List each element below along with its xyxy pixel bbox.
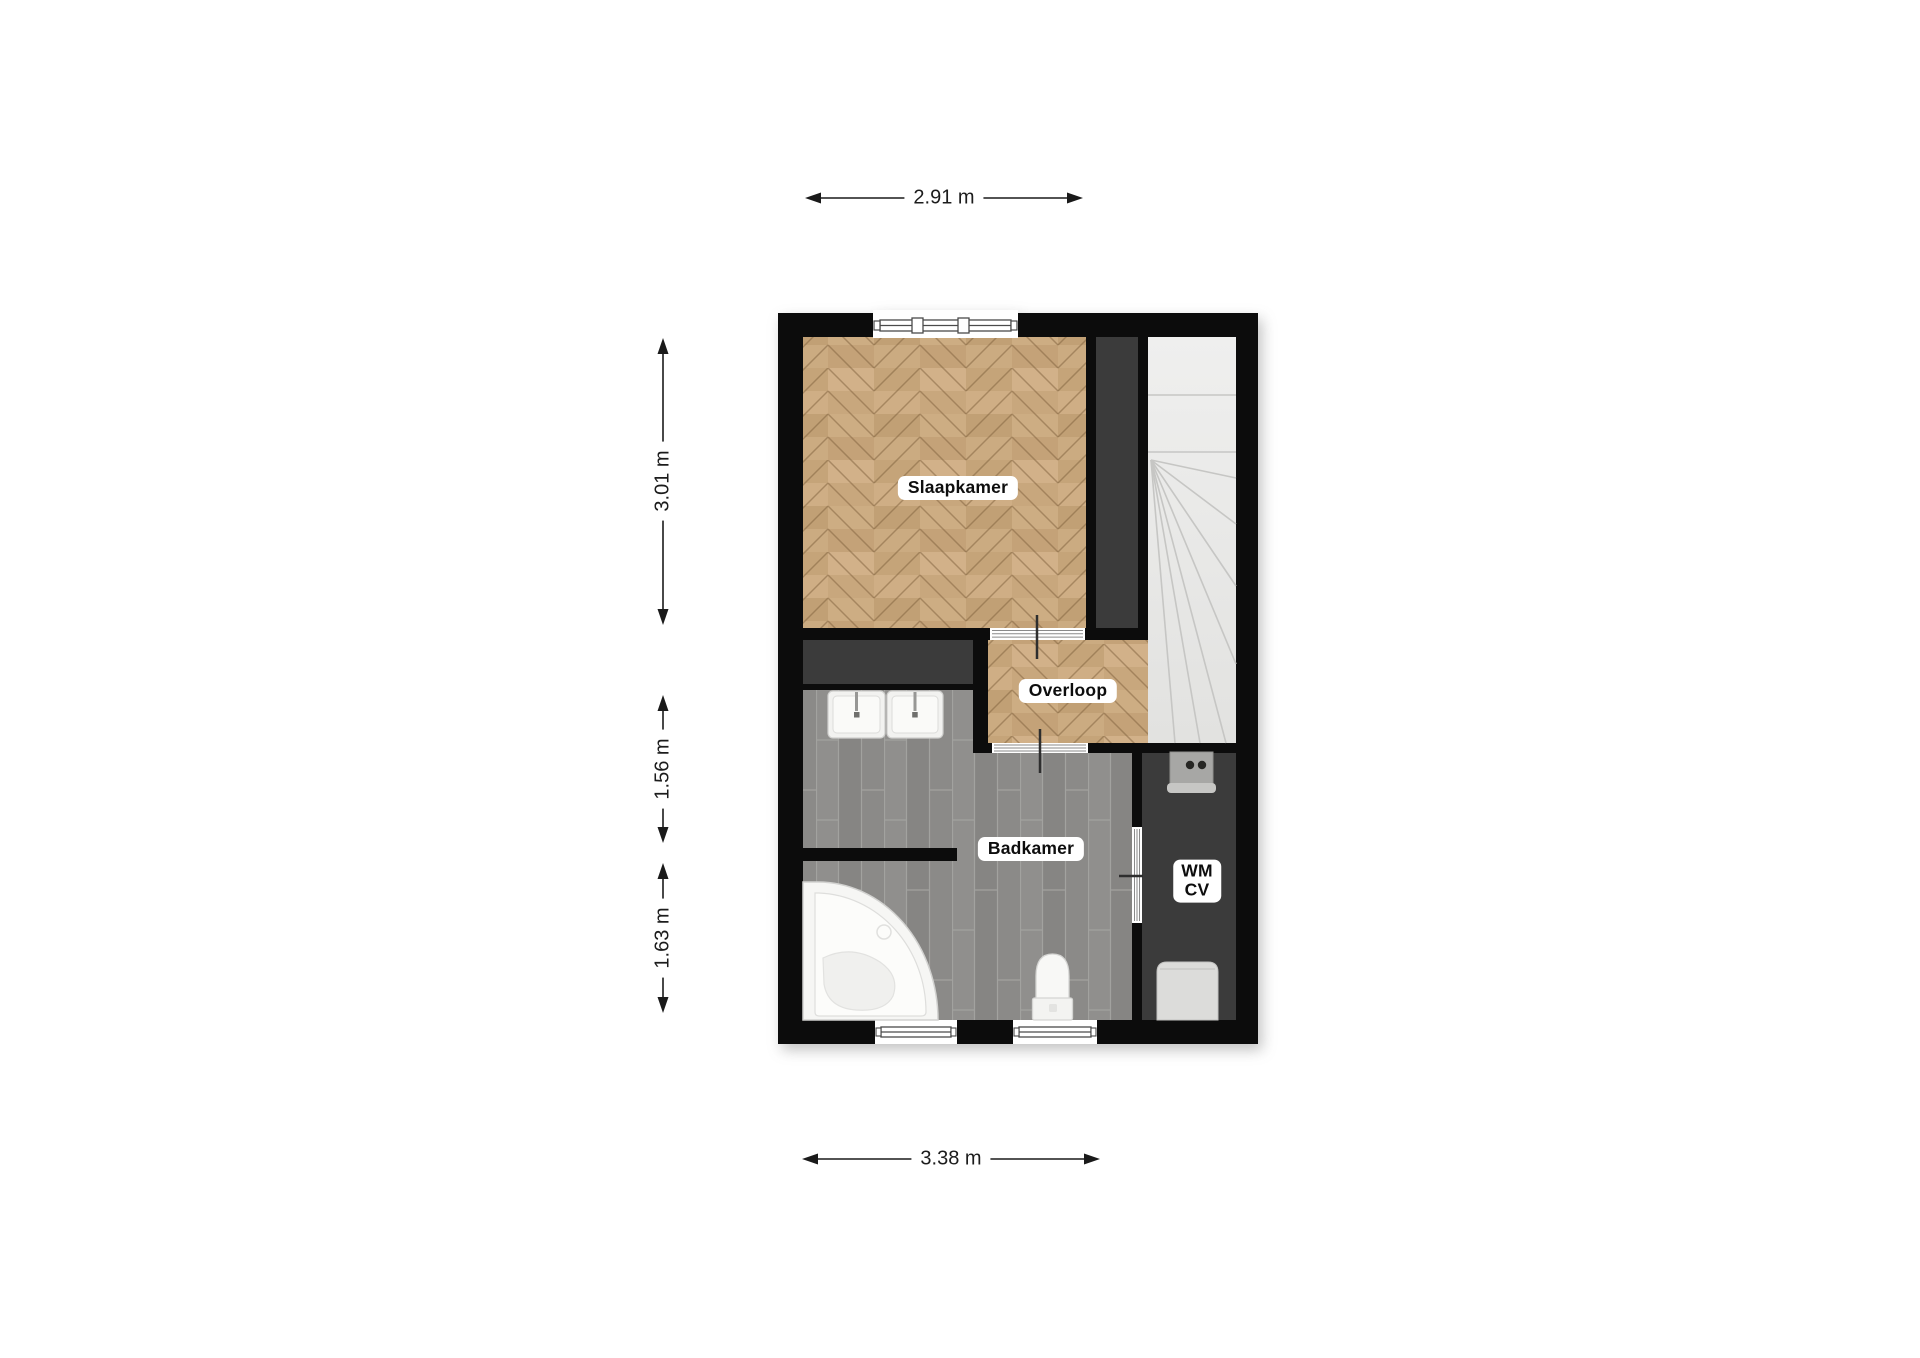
room-label-slaapkamer: Slaapkamer bbox=[898, 476, 1018, 500]
dimension-left-top: 3.01 m bbox=[652, 441, 675, 520]
dimension-left-bottom: 1.63 m bbox=[652, 898, 675, 977]
dimension-left-middle: 1.56 m bbox=[652, 729, 675, 808]
floorplan-page: Slaapkamer Overloop Badkamer WM CV 2.91 … bbox=[0, 0, 1920, 1358]
dimension-top-width: 2.91 m bbox=[904, 187, 983, 210]
dimension-bottom-width: 3.38 m bbox=[911, 1148, 990, 1171]
room-label-badkamer: Badkamer bbox=[978, 837, 1084, 861]
room-label-overloop: Overloop bbox=[1019, 679, 1117, 703]
room-label-wm-cv: WM CV bbox=[1173, 860, 1221, 903]
